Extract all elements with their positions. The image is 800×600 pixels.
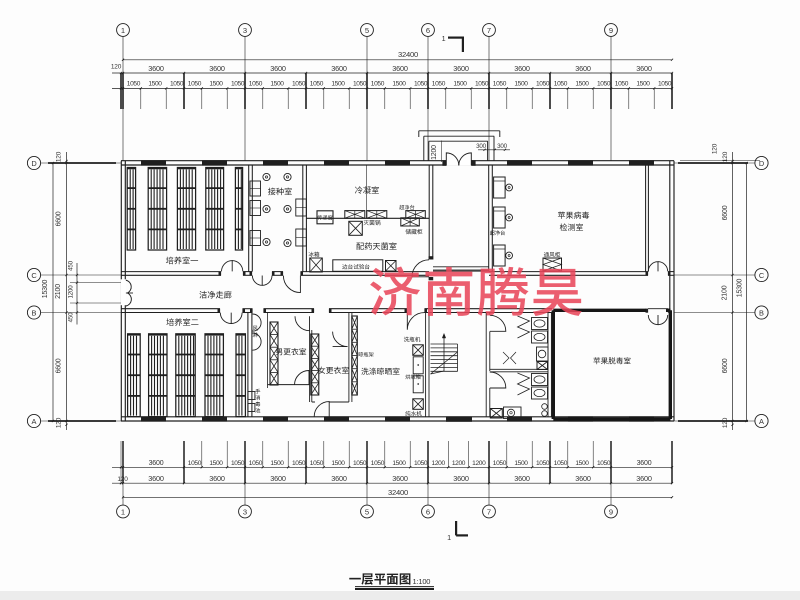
svg-text:1: 1 xyxy=(442,34,446,43)
svg-text:1500: 1500 xyxy=(392,81,406,88)
svg-text:6: 6 xyxy=(426,26,430,35)
svg-text:120: 120 xyxy=(712,143,719,154)
svg-text:5: 5 xyxy=(365,507,369,516)
svg-text:1500: 1500 xyxy=(575,460,589,467)
svg-text:1050: 1050 xyxy=(231,81,245,88)
svg-text:1050: 1050 xyxy=(353,81,367,88)
svg-text:1500: 1500 xyxy=(575,81,589,88)
svg-text:120: 120 xyxy=(56,417,63,428)
svg-text:6600: 6600 xyxy=(722,358,729,373)
svg-text:3600: 3600 xyxy=(637,460,652,467)
svg-text:1050: 1050 xyxy=(597,460,611,467)
svg-text:3600: 3600 xyxy=(270,474,286,483)
svg-text:32400: 32400 xyxy=(398,50,418,59)
svg-text:3600: 3600 xyxy=(331,474,347,483)
svg-text:1050: 1050 xyxy=(292,460,306,467)
svg-text:6: 6 xyxy=(426,507,430,516)
svg-text:3600: 3600 xyxy=(514,474,530,483)
svg-text:1500: 1500 xyxy=(331,81,345,88)
svg-text:1050: 1050 xyxy=(475,81,489,88)
svg-text:2100: 2100 xyxy=(55,284,62,299)
svg-text:1500: 1500 xyxy=(636,81,650,88)
svg-text:1050: 1050 xyxy=(127,81,141,88)
svg-text:C: C xyxy=(759,271,765,280)
svg-text:6600: 6600 xyxy=(56,358,63,373)
svg-text:1050: 1050 xyxy=(188,81,202,88)
svg-text:120: 120 xyxy=(111,64,122,71)
svg-text:1050: 1050 xyxy=(188,460,202,467)
svg-text:B: B xyxy=(759,308,764,317)
svg-text:1050: 1050 xyxy=(554,460,568,467)
svg-text:6600: 6600 xyxy=(56,211,63,226)
svg-text:1: 1 xyxy=(121,26,125,35)
svg-text:3600: 3600 xyxy=(392,64,408,73)
svg-text:3600: 3600 xyxy=(270,64,286,73)
svg-text:1200: 1200 xyxy=(472,460,486,467)
svg-text:1500: 1500 xyxy=(514,81,528,88)
svg-text:3600: 3600 xyxy=(148,474,164,483)
svg-text:6600: 6600 xyxy=(722,205,729,220)
svg-text:3: 3 xyxy=(243,507,247,516)
svg-text:D: D xyxy=(759,159,764,168)
svg-text:1500: 1500 xyxy=(148,81,162,88)
svg-text:A: A xyxy=(32,417,37,426)
svg-text:1050: 1050 xyxy=(371,460,385,467)
svg-text:1050: 1050 xyxy=(536,81,550,88)
svg-text:15300: 15300 xyxy=(42,279,49,298)
svg-text:1:100: 1:100 xyxy=(413,577,431,586)
svg-text:9: 9 xyxy=(609,507,613,516)
svg-text:3600: 3600 xyxy=(149,460,164,467)
svg-text:15300: 15300 xyxy=(737,278,744,297)
svg-text:1500: 1500 xyxy=(270,460,284,467)
svg-text:1500: 1500 xyxy=(209,460,223,467)
svg-text:1050: 1050 xyxy=(292,81,306,88)
svg-text:D: D xyxy=(31,159,36,168)
svg-text:1050: 1050 xyxy=(554,81,568,88)
svg-text:7: 7 xyxy=(487,26,491,35)
svg-text:1200: 1200 xyxy=(431,145,438,160)
svg-text:120: 120 xyxy=(56,151,63,162)
svg-text:1: 1 xyxy=(447,533,451,542)
svg-text:1050: 1050 xyxy=(414,460,428,467)
svg-text:1050: 1050 xyxy=(493,460,507,467)
svg-text:3600: 3600 xyxy=(575,64,591,73)
svg-text:5: 5 xyxy=(365,26,369,35)
svg-text:1050: 1050 xyxy=(493,81,507,88)
svg-text:1050: 1050 xyxy=(310,81,324,88)
svg-text:1050: 1050 xyxy=(231,460,245,467)
svg-text:3600: 3600 xyxy=(209,64,225,73)
svg-text:1050: 1050 xyxy=(536,460,550,467)
svg-text:3600: 3600 xyxy=(392,474,408,483)
svg-text:1200: 1200 xyxy=(68,285,75,299)
svg-text:1050: 1050 xyxy=(249,81,263,88)
svg-text:B: B xyxy=(32,308,37,317)
svg-text:1050: 1050 xyxy=(170,81,184,88)
svg-text:1050: 1050 xyxy=(615,81,629,88)
svg-text:3600: 3600 xyxy=(331,64,347,73)
svg-text:1: 1 xyxy=(121,507,125,516)
svg-text:9: 9 xyxy=(609,26,613,35)
svg-text:1500: 1500 xyxy=(270,81,284,88)
svg-text:1500: 1500 xyxy=(209,81,223,88)
svg-text:7: 7 xyxy=(487,507,491,516)
svg-text:A: A xyxy=(759,417,764,426)
svg-text:1500: 1500 xyxy=(453,81,467,88)
svg-text:3600: 3600 xyxy=(575,474,591,483)
svg-text:3600: 3600 xyxy=(209,474,225,483)
svg-text:3: 3 xyxy=(243,26,247,35)
svg-text:120: 120 xyxy=(722,417,729,428)
svg-text:450: 450 xyxy=(68,260,75,270)
svg-text:32400: 32400 xyxy=(388,488,408,497)
svg-text:1050: 1050 xyxy=(371,81,385,88)
svg-text:1050: 1050 xyxy=(249,460,263,467)
svg-text:3600: 3600 xyxy=(148,64,164,73)
svg-text:1050: 1050 xyxy=(310,460,324,467)
svg-text:1050: 1050 xyxy=(432,81,446,88)
svg-text:1050: 1050 xyxy=(353,460,367,467)
svg-text:3600: 3600 xyxy=(514,64,530,73)
svg-text:3600: 3600 xyxy=(453,474,469,483)
svg-text:3600: 3600 xyxy=(636,64,652,73)
svg-text:1200: 1200 xyxy=(452,460,466,467)
svg-text:1050: 1050 xyxy=(658,81,672,88)
svg-text:C: C xyxy=(31,271,37,280)
svg-text:1050: 1050 xyxy=(597,81,611,88)
svg-text:1500: 1500 xyxy=(514,460,528,467)
svg-text:3600: 3600 xyxy=(453,64,469,73)
svg-text:450: 450 xyxy=(68,312,75,322)
svg-text:1500: 1500 xyxy=(331,460,345,467)
svg-text:1500: 1500 xyxy=(392,460,406,467)
svg-text:2100: 2100 xyxy=(722,285,729,300)
svg-text:1050: 1050 xyxy=(414,81,428,88)
svg-text:1200: 1200 xyxy=(432,460,446,467)
svg-text:3600: 3600 xyxy=(636,474,652,483)
